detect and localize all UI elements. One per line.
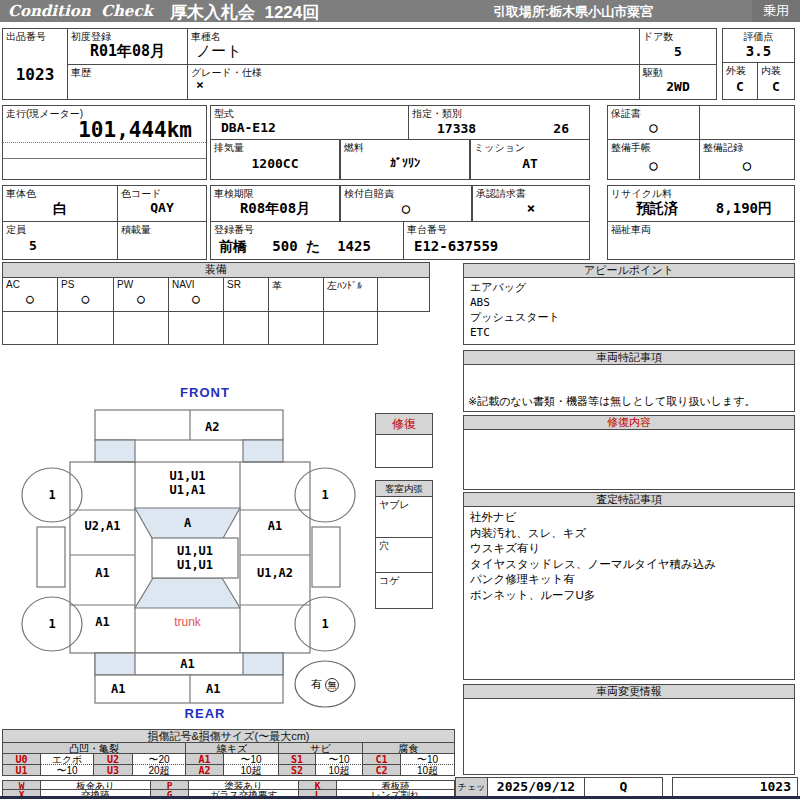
- right-door-damage: U1,A2: [240, 566, 310, 580]
- interior-grade-label: 内装: [761, 64, 781, 78]
- assessment-line: ウスキズ有り: [464, 541, 794, 557]
- rear-bumper-right-damage: A1: [190, 682, 283, 696]
- roof-damage-line2: U1,U1: [152, 558, 238, 572]
- maintenance-book-label: 整備手帳: [611, 141, 651, 155]
- cell-exterior-grade: 外装 C: [722, 62, 758, 100]
- equip-cell-extra: [377, 277, 430, 312]
- cell-body-color: 車体色 白: [2, 185, 118, 222]
- cell-warranty-spare: [699, 105, 795, 140]
- hood-damage-line1: U1,U1: [135, 469, 240, 483]
- legend-code: A2: [185, 764, 224, 776]
- change-info-header: 車両変更情報: [463, 684, 795, 699]
- appeal-line: プッシュスタート: [464, 310, 794, 325]
- roof-damage-line1: U1,U1: [152, 544, 238, 558]
- cell-history: 車歴: [67, 64, 188, 100]
- rear-left-light: [95, 653, 135, 675]
- front-left-wheel-mark: 1: [37, 488, 67, 502]
- recycle-amount: 8,190円: [716, 200, 772, 218]
- cell-maintenance-record: 整備記録 ○: [699, 139, 795, 180]
- rear-right-light: [243, 653, 283, 675]
- spare-no-label-circled: 無: [325, 678, 339, 692]
- repair-detail-body: [463, 429, 795, 490]
- doors-value: 5: [640, 44, 716, 59]
- auction-title: 厚木入札会 1224回: [170, 1, 319, 24]
- legend-value: 10超: [400, 764, 455, 776]
- cell-drive: 駆動 2WD: [639, 64, 717, 100]
- class-no-value1: 17338: [437, 121, 476, 136]
- equip-row2-c2: [57, 311, 114, 345]
- equip-row2-c5: [223, 311, 269, 345]
- front-right-light: [243, 440, 283, 462]
- cell-score: 評価点 3.5: [722, 28, 795, 63]
- chassis-no-value: E12-637559: [414, 238, 498, 254]
- rear-left-wheel-mark: 1: [37, 617, 67, 631]
- cell-fuel: 燃料 ｶﾞｿﾘﾝ: [340, 139, 470, 180]
- brand-logo: Condition Check: [8, 2, 153, 20]
- right-front-fender-damage: A1: [240, 519, 310, 533]
- repair-detail-header: 修復内容: [463, 415, 795, 430]
- cell-displacement: 排気量 1200CC: [210, 139, 340, 180]
- equip-cell-ps: PS ○: [57, 277, 114, 312]
- reg-no-value: 前橋 500 た 1425: [219, 238, 371, 256]
- cell-first-reg: 初度登録 R01年08月: [67, 28, 188, 65]
- assessment-line: 社外ナビ: [464, 510, 794, 526]
- legend-code: S2: [278, 764, 316, 776]
- color-code-label: 色コード: [121, 187, 161, 201]
- assessment-header: 査定特記事項: [463, 492, 795, 507]
- warranty-value: ○: [608, 119, 699, 135]
- left-mirror: [37, 527, 65, 587]
- front-bumper-damage: A2: [205, 420, 265, 434]
- displacement-label: 排気量: [214, 141, 244, 155]
- assessment-body: 社外ナビ 内装汚れ、スレ、キズ ウスキズ有り タイヤスタッドレス、ノーマルタイヤ…: [463, 506, 795, 680]
- special-notes-header: 車両特記事項: [463, 350, 795, 365]
- cell-insurance: 検付自賠責 ○: [340, 185, 472, 222]
- score-label: 評価点: [723, 30, 794, 44]
- model-code-value: DBA-E12: [221, 120, 276, 135]
- drive-value: 2WD: [640, 79, 716, 94]
- check-inspector: Q: [584, 777, 663, 797]
- cell-maintenance-book: 整備手帳 ○: [607, 139, 700, 180]
- approval-value: ×: [473, 200, 589, 216]
- front-left-light: [95, 440, 135, 462]
- recycle-status: 預託済: [636, 200, 678, 218]
- rear-window: [135, 578, 240, 608]
- transmission-label: ミッション: [474, 141, 525, 155]
- cell-mileage: 走行(現メーター) 101,444km: [2, 105, 207, 180]
- equip-row2-c3: [113, 311, 169, 345]
- check-number: 1023: [672, 777, 798, 797]
- assessment-line: タイヤスタッドレス、ノーマルタイヤ積み込み: [464, 557, 794, 573]
- cell-class-no: 指定・類別 17338 26: [408, 105, 590, 140]
- cell-grade: グレード・仕様 ×: [187, 64, 640, 100]
- class-no-label: 指定・類別: [412, 107, 462, 121]
- cell-load: 積載量: [117, 221, 207, 260]
- load-label: 積載量: [121, 223, 151, 237]
- legend-value: 〜10: [40, 764, 94, 776]
- right-mirror: [312, 527, 340, 587]
- cell-model-name: 車種名 ノート: [187, 28, 640, 65]
- assessment-line: パンク修理キット有: [464, 572, 794, 588]
- equip-label-lhd: 左ﾊﾝﾄﾞﾙ: [327, 279, 362, 293]
- maintenance-book-value: ○: [608, 157, 699, 173]
- appeal-body: エアバッグ ABS プッシュスタート ETC: [463, 277, 795, 345]
- check-date: 2025/09/12: [487, 777, 585, 797]
- maintenance-record-value: ○: [700, 157, 794, 173]
- special-notes-body: ※記載のない書類・機器等は無しとして取り扱いします。: [463, 364, 795, 412]
- windshield-damage: A: [135, 516, 240, 530]
- mileage-divider-solid: [3, 158, 206, 159]
- bottom-rule: [0, 796, 800, 799]
- cell-interior-grade: 内装 C: [757, 62, 795, 100]
- cell-approval: 承認請求書 ×: [472, 185, 590, 222]
- fuel-value: ｶﾞｿﾘﾝ: [341, 156, 469, 170]
- history-label: 車歴: [71, 66, 91, 80]
- appeal-header: アピールポイント: [463, 263, 795, 278]
- rear-bumper-left-damage: A1: [95, 682, 190, 696]
- legend-title: 損傷記号&損傷サイズ(〜最大cm): [2, 729, 455, 743]
- cell-inspection: 車検期限 R08年08月: [210, 185, 340, 222]
- body-color-value: 白: [3, 200, 117, 218]
- exterior-grade-label: 外装: [726, 64, 746, 78]
- mileage-divider-dotted: [3, 142, 206, 143]
- legend-code: C2: [362, 764, 401, 776]
- equip-row2-c6: [268, 311, 324, 345]
- cell-welfare: 福祉車両: [607, 221, 795, 260]
- legend-code: U3: [93, 764, 133, 776]
- change-info-body: [463, 698, 795, 775]
- cell-model-code: 型式 DBA-E12: [210, 105, 409, 140]
- cell-transmission: ミッション AT: [470, 139, 590, 180]
- equip-mark-pw: ○: [114, 291, 168, 306]
- spare-tire-indicator: 有 無: [297, 677, 353, 692]
- equip-row2-c7: [323, 311, 378, 345]
- auction-sheet: Condition Check 厚木入札会 1224回 引取場所:栃木県小山市粟…: [0, 0, 800, 800]
- equipment-header: 装備: [2, 262, 430, 278]
- hood-damage: U1,U1 U1,A1: [135, 469, 240, 497]
- welfare-label: 福祉車両: [611, 223, 651, 237]
- front-right-wheel-mark: 1: [310, 488, 340, 502]
- appeal-line: ETC: [464, 325, 794, 340]
- class-no-value2: 26: [553, 121, 569, 136]
- equip-mark-ps: ○: [58, 291, 113, 306]
- equip-label-ac: AC: [6, 279, 20, 290]
- cell-doors: ドア数 5: [639, 28, 717, 65]
- drive-label: 駆動: [643, 66, 663, 80]
- rear-label: REAR: [140, 707, 270, 721]
- model-name-value: ノート: [196, 42, 242, 61]
- cell-warranty: 保証書 ○: [607, 105, 700, 140]
- chassis-no-label: 車台番号: [407, 223, 447, 237]
- fuel-label: 燃料: [344, 141, 364, 155]
- cell-capacity: 定員 5: [2, 221, 118, 260]
- reg-no-label: 登録番号: [214, 223, 254, 237]
- interior-grade-value: C: [758, 79, 794, 94]
- equip-cell-navi: NAVI ○: [168, 277, 224, 312]
- roof-damage: U1,U1 U1,U1: [152, 544, 238, 572]
- title-bar: Condition Check 厚木入札会 1224回 引取場所:栃木県小山市粟…: [0, 0, 800, 22]
- equip-cell-leather: 革: [268, 277, 324, 312]
- equip-cell-sr: SR: [223, 277, 269, 312]
- pickup-location: 引取場所:栃木県小山市粟宮: [493, 3, 653, 21]
- cell-chassis-no: 車台番号 E12-637559: [403, 221, 590, 260]
- capacity-label: 定員: [6, 223, 26, 237]
- spare-yes-label: 有: [311, 677, 322, 692]
- score-value: 3.5: [723, 43, 794, 59]
- cell-auction-no: 出品番号 1023: [2, 28, 68, 100]
- cell-reg-no: 登録番号 前橋 500 た 1425: [210, 221, 404, 260]
- equip-cell-ac: AC ○: [2, 277, 58, 312]
- equip-label-leather: 革: [272, 279, 282, 293]
- assessment-line: 内装汚れ、スレ、キズ: [464, 526, 794, 542]
- equip-label-pw: PW: [117, 279, 133, 290]
- equip-label-navi: NAVI: [172, 279, 195, 290]
- grade-value: ×: [196, 77, 204, 92]
- insurance-value: ○: [341, 200, 471, 216]
- cell-color-code: 色コード QAY: [117, 185, 207, 222]
- mileage-value: 101,444km: [3, 118, 192, 142]
- legend-value: 20超: [132, 764, 186, 776]
- left-quarter-damage: A1: [70, 615, 135, 629]
- appeal-line: ABS: [464, 295, 794, 310]
- rear-right-wheel-mark: 1: [310, 617, 340, 631]
- exterior-grade-value: C: [723, 79, 757, 94]
- vehicle-category: 乗用: [752, 0, 800, 22]
- insurance-label: 検付自賠責: [344, 187, 394, 201]
- transmission-value: AT: [471, 156, 589, 171]
- color-code-value: QAY: [118, 200, 206, 215]
- approval-label: 承認請求書: [476, 187, 526, 201]
- appeal-line: エアバッグ: [464, 280, 794, 295]
- special-notes-footnote: ※記載のない書類・機器等は無しとして取り扱いします。: [468, 394, 756, 409]
- left-front-fender-damage: U2,A1: [70, 519, 135, 533]
- check-label: チェック: [455, 777, 488, 797]
- recycle-label: リサイクル料: [611, 187, 672, 201]
- inspection-label: 車検期限: [214, 187, 254, 201]
- first-reg-value: R01年08月: [68, 42, 187, 61]
- legend-code: U1: [2, 764, 41, 776]
- equip-mark-ac: ○: [3, 291, 57, 306]
- hood-damage-line2: U1,A1: [135, 483, 240, 497]
- equip-row2-c1: [2, 311, 58, 345]
- equip-label-sr: SR: [227, 279, 241, 290]
- cell-recycle: リサイクル料 預託済 8,190円: [607, 185, 795, 222]
- front-label: FRONT: [140, 386, 270, 400]
- rear-panel-damage: A1: [135, 657, 240, 671]
- trunk-label: trunk: [135, 615, 240, 629]
- assessment-line: ボンネット、ルーフU多: [464, 588, 794, 604]
- equip-row2-c4: [168, 311, 224, 345]
- doors-label: ドア数: [643, 30, 673, 44]
- model-code-label: 型式: [214, 107, 234, 121]
- legend-value: 10超: [315, 764, 363, 776]
- auction-no-value: 1023: [3, 65, 67, 84]
- equip-label-ps: PS: [61, 279, 74, 290]
- auction-no-label: 出品番号: [6, 30, 46, 44]
- body-color-label: 車体色: [6, 187, 36, 201]
- equip-cell-pw: PW ○: [113, 277, 169, 312]
- left-door-damage: A1: [70, 566, 135, 580]
- maintenance-record-label: 整備記録: [703, 141, 743, 155]
- legend-value: 10超: [223, 764, 279, 776]
- displacement-value: 1200CC: [211, 156, 339, 171]
- capacity-value: 5: [3, 238, 63, 253]
- equip-cell-lhd: 左ﾊﾝﾄﾞﾙ: [323, 277, 378, 312]
- equip-mark-navi: ○: [169, 291, 223, 306]
- inspection-value: R08年08月: [211, 200, 339, 218]
